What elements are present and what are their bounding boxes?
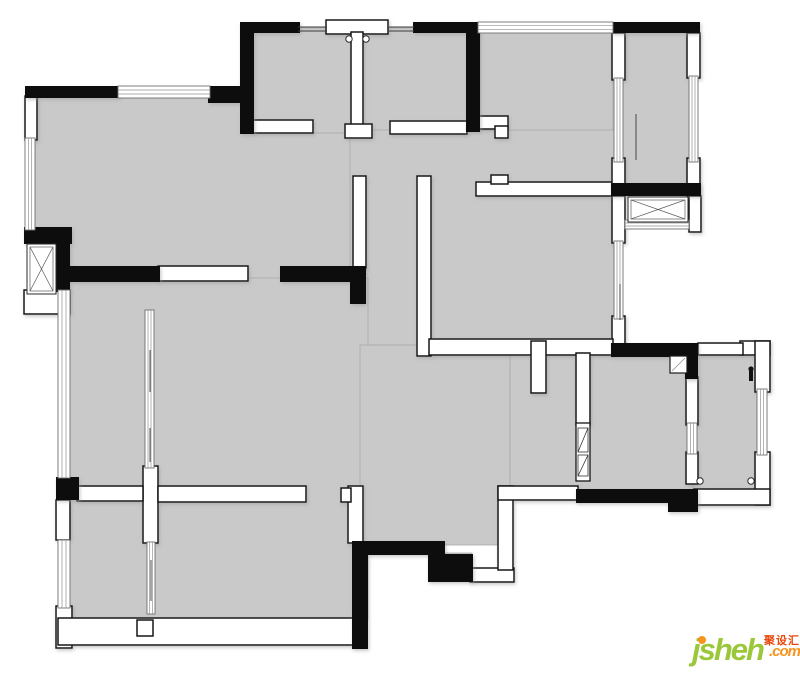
wall-white bbox=[25, 96, 37, 140]
watermark-logo: jsheh 聚设汇 .com bbox=[692, 633, 800, 673]
wall-black bbox=[56, 243, 70, 292]
floor-plan-canvas: jsheh 聚设汇 .com bbox=[0, 0, 800, 674]
wall-white bbox=[689, 196, 701, 232]
wall-black bbox=[352, 541, 368, 649]
wall-white bbox=[390, 121, 467, 134]
wall-black bbox=[56, 477, 79, 500]
watermark-text-com: .com bbox=[769, 643, 800, 660]
wall-white bbox=[495, 126, 508, 138]
wall-white bbox=[755, 341, 770, 392]
window bbox=[58, 540, 70, 608]
wall-white bbox=[612, 316, 625, 345]
wall-black bbox=[668, 489, 698, 512]
wall-white bbox=[686, 452, 698, 484]
window bbox=[478, 22, 613, 33]
wall-white bbox=[137, 620, 153, 636]
floor-area bbox=[360, 345, 510, 545]
wall-black bbox=[611, 22, 700, 33]
hinge-dot bbox=[346, 36, 352, 42]
window bbox=[614, 241, 623, 319]
hinge-dot bbox=[363, 36, 369, 42]
wall-lamp-icon bbox=[748, 366, 753, 371]
wall-white bbox=[252, 120, 313, 133]
wall-black bbox=[355, 541, 445, 555]
floor-plan-svg bbox=[0, 0, 800, 674]
hatch-windows bbox=[576, 423, 590, 481]
wall-white bbox=[158, 486, 306, 502]
wall-white bbox=[576, 353, 590, 425]
wall-white bbox=[491, 175, 508, 184]
window bbox=[145, 310, 154, 468]
wall-white bbox=[351, 32, 363, 128]
floor-areas bbox=[30, 28, 763, 620]
window bbox=[118, 86, 210, 98]
wall-white bbox=[341, 488, 351, 502]
wall-white bbox=[694, 489, 770, 505]
wall-white bbox=[698, 343, 743, 355]
wall-white bbox=[612, 196, 625, 243]
door-leaves bbox=[670, 356, 687, 373]
window bbox=[614, 78, 623, 162]
wall-black bbox=[25, 86, 120, 98]
window bbox=[689, 76, 698, 162]
wall-white bbox=[686, 377, 698, 425]
wall-black bbox=[466, 22, 480, 132]
wall-white bbox=[158, 266, 248, 281]
wall-black bbox=[428, 554, 473, 582]
window bbox=[687, 423, 697, 454]
wall-black bbox=[350, 282, 366, 304]
wall-lamp-icon bbox=[749, 371, 753, 381]
wall-white bbox=[687, 33, 700, 78]
wall-white bbox=[58, 618, 356, 645]
floor-area bbox=[350, 130, 620, 345]
wall-white bbox=[143, 466, 158, 543]
window bbox=[25, 138, 35, 230]
wall-black bbox=[58, 266, 160, 282]
wall-white bbox=[612, 33, 625, 80]
wall-black bbox=[611, 183, 701, 196]
wall-white bbox=[56, 500, 70, 540]
wall-black bbox=[240, 22, 300, 33]
window bbox=[58, 290, 70, 478]
wall-white bbox=[531, 341, 546, 393]
wall-white bbox=[353, 176, 366, 268]
wall-white bbox=[498, 486, 578, 500]
floor-area bbox=[619, 30, 694, 188]
wall-black bbox=[611, 343, 698, 357]
wall-marks bbox=[748, 366, 753, 381]
wall-white bbox=[417, 176, 431, 356]
floor-area bbox=[66, 278, 368, 620]
wall-white bbox=[77, 486, 143, 501]
wall-white bbox=[345, 124, 372, 138]
wall-black bbox=[240, 22, 254, 134]
wall-black bbox=[280, 266, 366, 282]
watermark-j-dot-icon bbox=[698, 636, 706, 644]
window bbox=[757, 389, 767, 455]
hinge-dot bbox=[748, 478, 754, 484]
hinge-dot bbox=[697, 478, 703, 484]
